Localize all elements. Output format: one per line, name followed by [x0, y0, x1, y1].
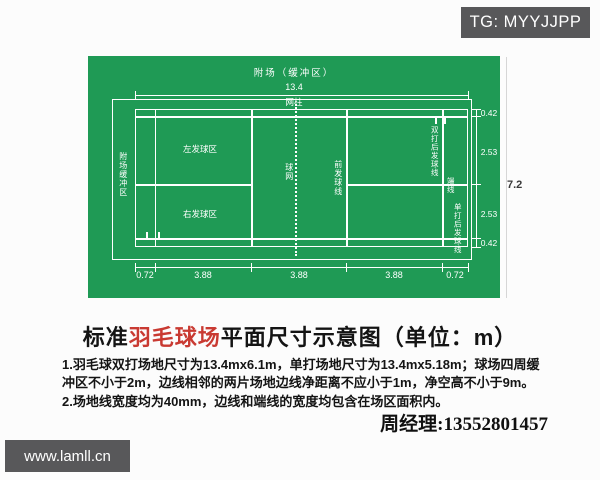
- test-mark: [146, 232, 148, 238]
- bottom-dim-0: 0.72: [130, 270, 160, 280]
- dimension-tick: [346, 263, 347, 272]
- dimension-tick: [251, 263, 252, 272]
- left-service-court-label: 左发球区: [160, 145, 240, 154]
- right-dimension-line: [476, 109, 477, 248]
- bottom-dim-3: 3.88: [379, 270, 409, 280]
- doubles-back-service-line-label: 双打后发球线: [430, 126, 438, 177]
- right-dim-0: 0.42: [478, 108, 500, 118]
- singles-back-service-line-label: 单打后发球线: [453, 203, 461, 254]
- badminton-court-diagram: 附场（缓冲区） 13.4 网柱 左发球区 右发球区 附场缓冲区 球网 前发球线 …: [88, 56, 500, 298]
- right-dim-3: 0.42: [478, 238, 500, 248]
- site-watermark-text: www.lamll.cn: [24, 448, 111, 465]
- buffer-zone-left-label: 附场缓冲区: [118, 152, 127, 197]
- test-mark: [435, 118, 437, 124]
- page: TG: MYYJJPP 附场（缓冲区） 13.4 网柱 左发球区 右发球区 附场…: [0, 0, 600, 480]
- bottom-dim-2: 3.88: [284, 270, 314, 280]
- right-dim-2: 2.53: [478, 209, 500, 219]
- page-title: 标准羽毛球场平面尺寸示意图（单位：m）: [0, 320, 600, 352]
- end-line-label: 端线: [446, 177, 454, 194]
- notes: 1.羽毛球双打场地尺寸为13.4mx6.1m，单打场地尺寸为13.4mx5.18…: [62, 356, 549, 413]
- bottom-dim-4: 0.72: [440, 270, 470, 280]
- tg-watermark-badge: TG: MYYJJPP: [461, 7, 590, 38]
- test-mark: [158, 232, 160, 238]
- site-watermark-badge: www.lamll.cn: [5, 440, 130, 472]
- court-boundary-rect: [135, 109, 468, 247]
- title-suffix: 平面尺寸示意图（单位：m）: [221, 325, 518, 350]
- total-height-dimension: 7.2: [507, 179, 539, 191]
- test-mark: [444, 118, 446, 124]
- right-dim-1: 2.53: [478, 147, 500, 157]
- doubles-back-service-line-right: [442, 109, 444, 247]
- total-length-dimension: 13.4: [88, 82, 500, 92]
- title-highlight: 羽毛球场: [129, 325, 221, 350]
- title-prefix: 标准: [83, 325, 129, 350]
- singles-sideline-top: [135, 116, 468, 118]
- length-dimension-line: [135, 95, 469, 96]
- center-line-left: [135, 184, 252, 186]
- bottom-dimension-line: [135, 267, 469, 268]
- bottom-dim-1: 3.88: [188, 270, 218, 280]
- net-dotted-line: [295, 104, 297, 256]
- front-service-line-right: [346, 109, 348, 247]
- right-service-court-label: 右发球区: [160, 210, 240, 219]
- front-service-line-label: 前发球线: [333, 160, 342, 196]
- contact-phone: 周经理:13552801457: [148, 409, 548, 436]
- front-service-line-left: [251, 109, 253, 247]
- note-line-2: 2.场地线宽度均为40mm，边线和端线的宽度均包含在场区面积内。: [62, 393, 549, 411]
- doubles-back-service-line-left: [155, 109, 157, 247]
- singles-sideline-bottom: [135, 238, 468, 240]
- tg-watermark-text: TG: MYYJJPP: [470, 13, 582, 32]
- buffer-zone-top-label: 附场（缓冲区）: [88, 69, 500, 79]
- dimension-tick: [472, 184, 481, 185]
- note-line-1: 1.羽毛球双打场地尺寸为13.4mx6.1m，单打场地尺寸为13.4mx5.18…: [62, 356, 549, 391]
- net-label: 球网: [284, 163, 293, 181]
- height-dimension-line: [506, 57, 507, 298]
